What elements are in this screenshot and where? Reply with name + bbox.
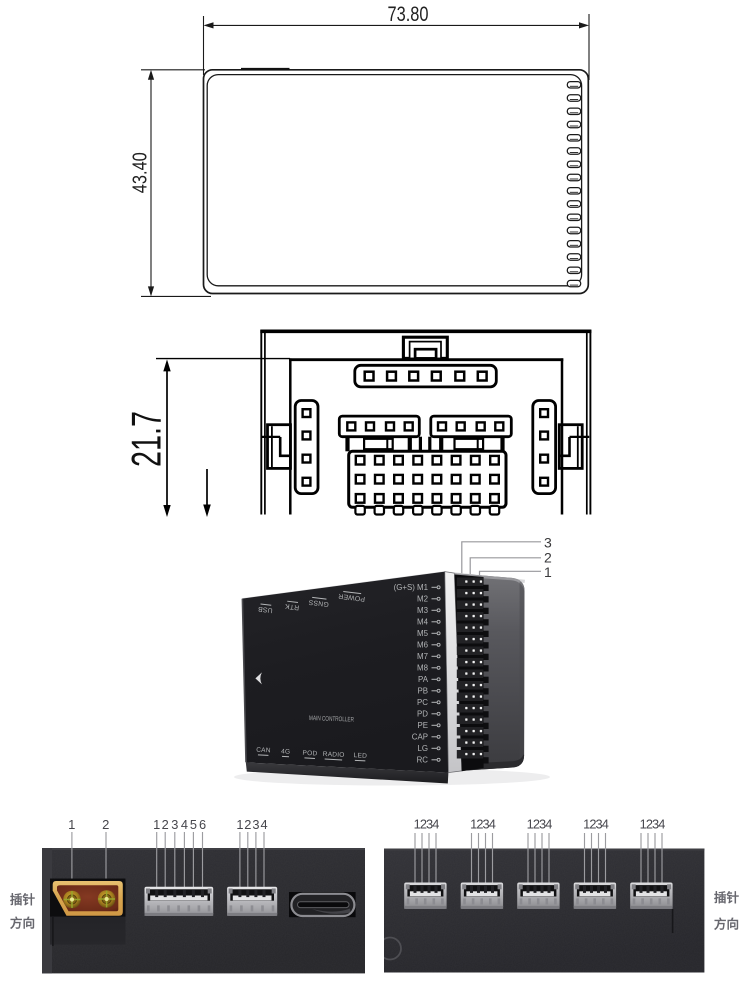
svg-text:43.40: 43.40 [130,152,152,193]
svg-text:1: 1 [544,564,552,580]
svg-text:M4: M4 [417,618,429,627]
svg-text:3: 3 [252,817,259,832]
svg-text:M8: M8 [417,664,429,673]
svg-text:M3: M3 [417,606,429,615]
svg-text:方向: 方向 [714,917,739,932]
svg-text:2: 2 [102,817,109,832]
svg-text:M6: M6 [417,641,429,650]
svg-text:PA: PA [418,675,429,684]
svg-text:M2: M2 [417,595,428,604]
svg-text:4: 4 [489,817,496,832]
svg-text:PB: PB [417,687,428,696]
svg-text:RADIO: RADIO [323,751,345,759]
svg-text:CAP: CAP [412,733,428,742]
svg-text:LG: LG [417,744,428,753]
svg-text:3: 3 [544,534,552,550]
svg-text:2: 2 [544,550,552,566]
svg-text:插针: 插针 [10,892,36,907]
svg-text:LED: LED [353,752,367,760]
svg-text:4: 4 [602,817,609,832]
svg-text:插针: 插针 [714,890,740,905]
svg-text:21.7: 21.7 [123,411,170,467]
svg-text:4: 4 [432,817,439,832]
svg-text:PE: PE [417,721,428,730]
svg-text:2: 2 [162,817,169,832]
svg-text:5: 5 [190,817,197,832]
svg-text:4G: 4G [281,748,291,755]
svg-text:1: 1 [68,817,75,832]
svg-text:4: 4 [181,817,188,832]
svg-text:M7: M7 [417,652,428,661]
svg-text:RC: RC [417,756,429,765]
svg-text:POD: POD [302,750,317,758]
svg-text:M5: M5 [417,629,429,638]
svg-text:4: 4 [658,817,665,832]
svg-text:4: 4 [260,817,267,832]
svg-text:1: 1 [236,817,243,832]
svg-text:2: 2 [244,817,251,832]
svg-text:1: 1 [153,817,160,832]
svg-text:3: 3 [171,817,178,832]
svg-text:方向: 方向 [10,916,35,931]
svg-text:PC: PC [417,698,428,707]
svg-text:PD: PD [417,710,428,719]
svg-text:(G+S) M1: (G+S) M1 [394,583,428,592]
svg-text:4: 4 [545,817,552,832]
svg-text:73.80: 73.80 [388,3,429,26]
svg-text:6: 6 [199,817,206,832]
svg-text:CAN: CAN [256,747,271,755]
